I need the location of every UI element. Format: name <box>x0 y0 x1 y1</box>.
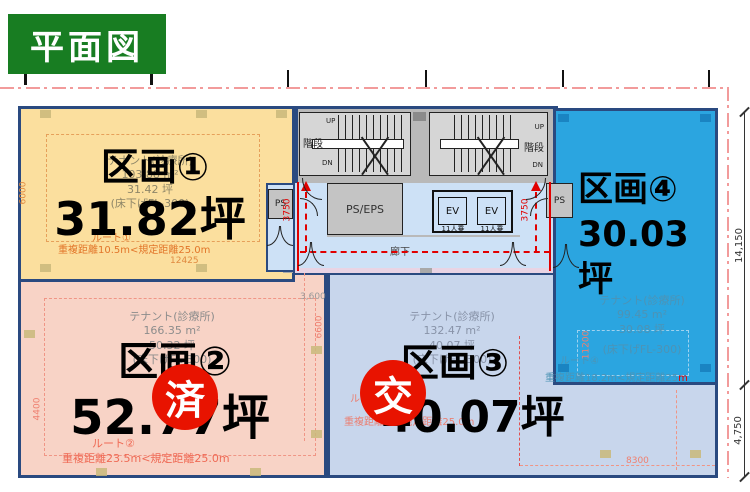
stair-treads <box>454 115 513 139</box>
section-4-name: 区画④ <box>578 168 718 213</box>
guide-dashed-line <box>520 465 715 466</box>
elevator-capacity: 11人乗 <box>473 224 511 234</box>
column-marker <box>196 110 207 118</box>
dim-3750-right: 3750 <box>520 199 530 222</box>
guide-dashed-line <box>676 390 677 470</box>
status-badge-done: 済 <box>152 364 218 430</box>
column-marker <box>24 330 35 338</box>
stairwell-left: 階段 UP DN <box>299 112 411 176</box>
stair-up-label: UP <box>535 123 544 131</box>
dim-6600: 6600 <box>314 316 324 339</box>
badge-text: 済 <box>165 368 205 426</box>
wall-marker <box>420 268 432 273</box>
elevator-2: EV <box>477 197 506 225</box>
boundary-tick <box>708 70 710 87</box>
fire-line <box>549 182 551 271</box>
column-marker <box>276 110 287 118</box>
section-1-title: 区画① <box>40 148 270 186</box>
column-marker <box>558 114 569 122</box>
stairwell-right: 階段 UP DN <box>429 112 548 176</box>
tenant-area-m2: 99.45 m² <box>562 308 722 322</box>
boundary-tick <box>287 70 289 87</box>
dim-8300: 8300 <box>626 456 649 466</box>
dim-4750: 4,750 <box>733 416 744 445</box>
stairs-label: 階段 <box>303 135 323 150</box>
dimension-line-right <box>744 112 745 478</box>
section-4-tsubo-unit: 坪 <box>578 258 718 303</box>
column-marker <box>96 468 107 476</box>
dim-3600: 3,600 <box>300 292 326 302</box>
column-marker <box>40 264 51 272</box>
column-marker <box>311 346 322 354</box>
dim-12425: 12425 <box>170 256 199 266</box>
stair-landing <box>312 139 404 149</box>
stair-dn-label: DN <box>532 161 543 169</box>
elevator-1: EV <box>438 197 467 225</box>
ps-eps-room: PS/EPS <box>327 183 403 235</box>
badge-text: 交 <box>373 364 413 422</box>
drawing-title: 平面図 <box>30 20 144 69</box>
drawing-title-box: 平面図 <box>8 14 166 74</box>
column-marker <box>311 430 322 438</box>
column-marker <box>196 264 207 272</box>
dim-14150: 14,150 <box>734 228 745 263</box>
column-marker <box>600 450 611 458</box>
ps-eps-label: PS/EPS <box>346 203 384 216</box>
column-marker <box>40 110 51 118</box>
column-marker <box>690 450 701 458</box>
column-marker <box>558 364 569 372</box>
site-boundary-line-vertical <box>727 87 729 478</box>
elevator-label: EV <box>485 206 498 217</box>
stair-up-label: UP <box>326 117 335 125</box>
tenant-type: テナント(診療所) <box>372 310 532 324</box>
elevator-label: EV <box>446 206 459 217</box>
stair-treads <box>454 147 513 172</box>
stair-treads <box>338 115 408 139</box>
route-detail-text: 重複距離18.2m<規定距離25 <box>545 373 678 384</box>
tenant-area-m2: 132.47 m² <box>372 324 532 338</box>
stairs-label: 階段 <box>524 139 544 154</box>
tenant-area-m2: 166.35 m² <box>92 324 252 338</box>
column-marker <box>250 468 261 476</box>
shaft-marker <box>413 112 426 121</box>
tenant-type: テナント(診療所) <box>92 310 252 324</box>
route-dashed-line <box>300 251 550 253</box>
section-1-tsubo: 31.82坪 <box>25 196 275 242</box>
ps-label: PS <box>554 196 565 206</box>
stair-dn-label: DN <box>322 159 333 167</box>
section-2-route-detail: 重複距離23.5m<規定距離25.0m <box>62 450 230 466</box>
site-boundary-line-horizontal <box>0 87 729 89</box>
boundary-tick <box>425 70 427 87</box>
column-marker <box>700 114 711 122</box>
section-4-tsubo-value: 30.03 <box>578 213 718 258</box>
status-badge-negotiating: 交 <box>360 360 426 426</box>
column-marker <box>700 364 711 372</box>
boundary-tick <box>562 70 564 87</box>
floor-plan-canvas: 階段 UP DN 階段 UP DN PS/EPS EV EV 11人乗 11人乗… <box>0 0 750 492</box>
route-detail-suffix: m <box>678 373 688 384</box>
section-4-title: 区画④ 30.03 坪 <box>578 168 718 302</box>
dim-3750-left: 3750 <box>282 199 292 222</box>
elevator-capacity: 11人乗 <box>434 224 472 234</box>
dim-11200: 11200 <box>581 331 591 360</box>
